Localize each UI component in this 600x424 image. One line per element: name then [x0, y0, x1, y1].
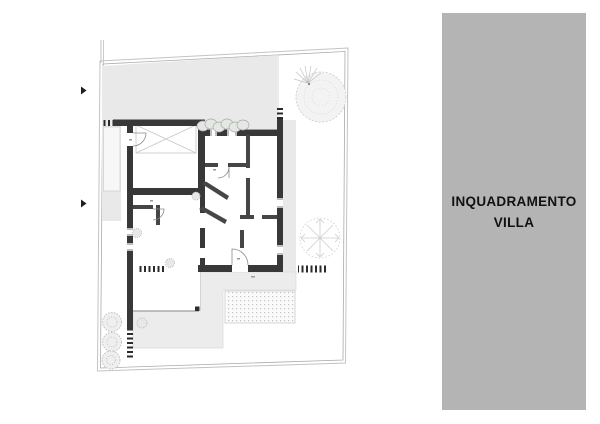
- entrance-walkway: [104, 127, 121, 191]
- panel-title-line2: VILLA: [494, 212, 535, 233]
- drawing-sheet: INQUADRAMENTO VILLA: [0, 0, 600, 424]
- panel-title-line1: INQUADRAMENTO: [451, 191, 576, 212]
- tree-icons-bottom-left: [102, 313, 122, 370]
- title-panel: INQUADRAMENTO VILLA: [442, 13, 586, 410]
- access-arrows: [81, 87, 87, 208]
- tree-icon-top-right: [294, 66, 346, 122]
- side-strip: [283, 120, 296, 272]
- tree-icon-right-middle: [300, 218, 340, 258]
- hedge: [197, 119, 249, 132]
- pool-patio: [225, 291, 295, 323]
